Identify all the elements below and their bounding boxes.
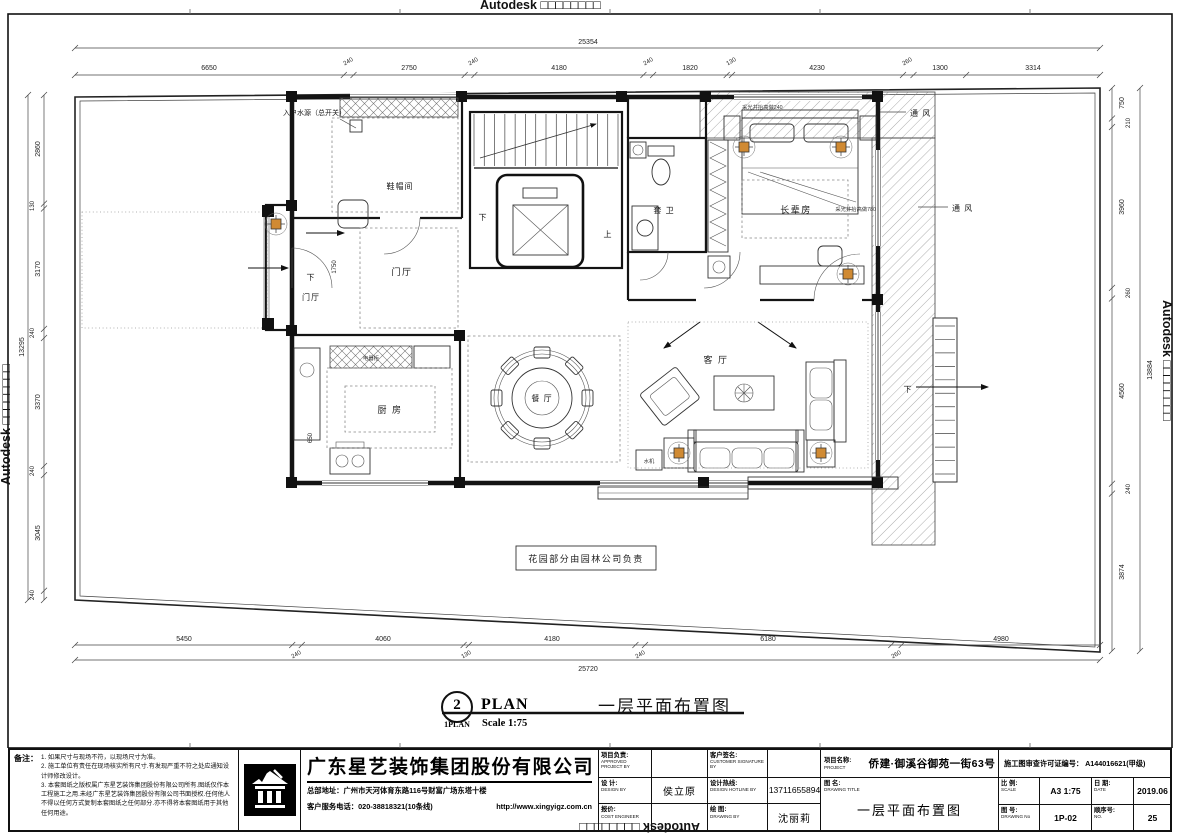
date-en: DATE (1094, 787, 1131, 792)
note-line: 1. 如果尺寸与现场不符，以现场尺寸为准。 (41, 753, 234, 762)
design-hotline-value: 13711655894 (767, 777, 821, 804)
dim: 240 (30, 589, 36, 600)
downlight (265, 213, 287, 235)
ceiling-outlines (327, 118, 868, 468)
design-by-value: 侯立原 (651, 777, 707, 804)
watermark-bottom: Autodesk □□□□□□□□ (579, 820, 700, 834)
interior-walls (292, 97, 878, 483)
label-kitchen: 厨 房 (377, 404, 402, 415)
label-foyer-porch: 门厅 (302, 292, 320, 302)
label-down-stairs: 下 (479, 213, 488, 222)
living-furniture (636, 360, 898, 489)
downlight (668, 442, 690, 464)
drawing-no-label: 图 号: DRAWING No (999, 804, 1039, 830)
dim: 240 (635, 650, 647, 661)
dim: 240 (468, 57, 480, 68)
dim: 130 (726, 57, 738, 68)
dim-left-overall: 13295 (19, 337, 26, 357)
downlight (830, 136, 852, 158)
scale-value: A3 1:75 (1039, 778, 1091, 804)
dim: 3045 (35, 525, 42, 541)
stairs (474, 114, 618, 168)
dim: 3960 (1119, 199, 1126, 215)
dim-chain-bottom (72, 642, 1103, 648)
project-cn: 项目名称: (824, 757, 866, 764)
dim: 240 (30, 465, 36, 476)
hotline-cn: 设计热线: (710, 780, 765, 787)
company-address: 总部地址：广州市天河体育东路116号财富广场东塔十楼 (307, 786, 592, 796)
dim-chain-bottom-overall (72, 657, 1103, 663)
signature-fields-section: 项目负责: APPROVED PROJECT BY 客户签名: CUSTOMER… (598, 750, 820, 830)
dim: 4180 (551, 65, 567, 72)
date-value: 2019.06 (1133, 778, 1171, 804)
label-vent-top: 通 风 (910, 108, 931, 118)
scale-date-section: 施工图审查许可证编号： A144016621(甲级) 比 例: SCALE A3… (998, 750, 1170, 830)
dim-chain-right (1109, 85, 1115, 654)
drawing-no-en: DRAWING No (1001, 814, 1037, 819)
drawing-by-value: 沈丽莉 (767, 803, 821, 830)
cost-en: COST ENGINEER (601, 814, 649, 819)
drawing-title-en: DRAWING TITLE (824, 787, 860, 792)
date-label: 日 期: DATE (1091, 778, 1133, 804)
logo-section (238, 750, 300, 830)
plan-title-number: 2 (453, 697, 461, 713)
notes-section: 备注： 1. 如果尺寸与现场不符，以现场尺寸为准。 2. 施工单位有责任在现场核… (10, 750, 238, 830)
design-hotline-label: 设计热线: DESIGN HOTLINE BY (707, 777, 767, 804)
label-water-machine: 水机 (644, 457, 655, 465)
dim-top-overall: 25354 (578, 39, 598, 46)
dim-bottom-overall: 25720 (578, 666, 598, 673)
label-lightwell-top: 采光井抬高做240 (742, 103, 783, 111)
dim: 260 (902, 57, 914, 68)
permit-label: 施工图审查许可证编号： (1004, 759, 1083, 769)
dim: 240 (643, 57, 655, 68)
dim: 2860 (35, 141, 42, 157)
label-down-right: 下 (904, 385, 913, 394)
dim: 210 (1126, 117, 1132, 128)
xingyi-logo-emblem (248, 768, 292, 812)
hotline-en: DESIGN HOTLINE BY (710, 787, 765, 792)
note-line: 2. 施工单位有责任在现场核实所有尺寸.有发现严重不符之处应通知设计师修改设计。 (41, 762, 234, 781)
label-bath: 套 卫 (653, 205, 674, 215)
dim: 6650 (201, 65, 217, 72)
plan-title: 2 1PLAN PLAN Scale 1:75 一层平面布置图 (442, 692, 744, 729)
dim: 4060 (375, 636, 391, 643)
drawn-cn: 绘 图: (710, 806, 765, 813)
design-en: DESIGN BY (601, 787, 649, 792)
outdoor-stair (933, 318, 957, 482)
label-up-stairs: 上 (604, 230, 613, 239)
dim: 3874 (1119, 564, 1126, 580)
company-name: 广东星艺装饰集团股份有限公司 (307, 752, 592, 783)
drawing-by-label: 绘 图: DRAWING BY (707, 803, 767, 830)
scale-label: 比 例: SCALE (999, 778, 1039, 804)
label-vent-right: 通 风 (952, 203, 973, 213)
approved-by-value (651, 750, 707, 777)
label-lightwell-right: 采光井抬高做780 (835, 205, 876, 213)
entry-walkway (82, 212, 267, 328)
label-appliance-cabinet: 电器柜 (363, 354, 380, 362)
company-url: http://www.xingyigz.com.cn (496, 802, 592, 811)
dim-kitchen: 650 (308, 432, 314, 443)
downlight (733, 136, 755, 158)
approved-en: APPROVED PROJECT BY (601, 759, 649, 769)
drawing-no-cn: 图 号: (1001, 807, 1037, 814)
dim: 1820 (682, 65, 698, 72)
company-section: 广东星艺装饰集团股份有限公司 总部地址：广州市天河体育东路116号财富广场东塔十… (300, 750, 598, 830)
company-phone: 客户服务电话：020-38818321(10条线) (307, 802, 433, 812)
elevator (497, 175, 583, 267)
project-label: 项目名称: PROJECT (821, 755, 866, 771)
dim: 260 (891, 650, 903, 661)
note-line: 3. 本套图纸之版权属广东星艺装饰集团股份有限公司所有.图纸仅作本工程施工之用.… (41, 781, 234, 818)
dim: 240 (30, 327, 36, 338)
plan-title-ref: 1PLAN (444, 720, 470, 729)
label-shoe-room: 鞋帽间 (387, 181, 414, 191)
dim: 3370 (35, 394, 42, 410)
dim: 750 (1119, 97, 1126, 109)
dim: 240 (1126, 483, 1132, 494)
customer-cn: 客户签名: (710, 752, 765, 759)
dim: 240 (291, 650, 303, 661)
label-down-porch: 下 (307, 273, 316, 282)
drawing-sheet: Autodesk □□□□□□□□ Autodesk □□□□□□□□ Auto… (0, 0, 1180, 834)
watermark-left: Autodesk □□□□□□□□ (0, 265, 13, 485)
drawing-title-cn: 图 名: (824, 780, 860, 787)
dim: 4230 (809, 65, 825, 72)
customer-signature-value (767, 750, 821, 777)
fridge (414, 346, 450, 368)
sequence-no-value: 25 (1133, 804, 1171, 830)
sequence-no-label: 顺序号: NO. (1091, 804, 1133, 830)
dim: 3314 (1025, 65, 1041, 72)
garden-note-text: 花园部分由园林公司负责 (528, 553, 644, 564)
wardrobe (708, 140, 730, 278)
columns (262, 91, 883, 488)
dim-chain-right-overall (1137, 85, 1143, 654)
windows (264, 93, 882, 488)
permit-value: A144016621(甲级) (1085, 759, 1145, 769)
drawing-title-value: 一层平面布置图 (821, 800, 998, 819)
approved-by-label: 项目负责: APPROVED PROJECT BY (599, 750, 651, 777)
project-en: PROJECT (824, 765, 866, 770)
plan-title-cn: 一层平面布置图 (598, 697, 731, 716)
drawing-no-value: 1P-02 (1039, 804, 1091, 830)
shoe-room-chair (338, 200, 368, 228)
label-living: 客 厅 (703, 354, 728, 365)
dim: 130 (461, 650, 473, 661)
dim: 4180 (544, 636, 560, 643)
dim-chain-top (72, 72, 1103, 78)
drawing-title-label: 图 名: DRAWING TITLE (824, 780, 860, 792)
plan-title-scale: Scale 1:75 (482, 718, 527, 729)
garden-note: 花园部分由园林公司负责 (516, 546, 656, 570)
project-section: 项目名称: PROJECT 侨建·御溪谷御苑一街63号 图 名: DRAWING… (820, 750, 998, 830)
watermark-right: Autodesk □□□□□□□□ (1160, 300, 1174, 520)
dim-right-overall: 13884 (1147, 360, 1154, 380)
closet-band (340, 98, 458, 117)
plan-title-name: PLAN (481, 696, 529, 713)
seq-en: NO. (1094, 814, 1131, 819)
drawn-en: DRAWING BY (710, 814, 765, 819)
dim: 5450 (176, 636, 192, 643)
date-cn: 日 期: (1094, 780, 1131, 787)
seq-cn: 顺序号: (1094, 807, 1131, 814)
terrace-steps (598, 487, 748, 499)
dim: 240 (343, 57, 355, 68)
label-water-source: 入户水源（总开关） (283, 108, 346, 117)
project-name: 侨建·御溪谷御苑一街63号 (866, 756, 998, 771)
dim: 3170 (35, 261, 42, 277)
dim: 4980 (993, 636, 1009, 643)
dim: 1300 (932, 65, 948, 72)
scale-en: SCALE (1001, 787, 1037, 792)
downlight (837, 263, 859, 285)
dim: 130 (30, 200, 36, 211)
dim: 4560 (1119, 383, 1126, 399)
dim: 260 (1126, 287, 1132, 298)
label-foyer: 门厅 (391, 266, 412, 277)
design-cn: 设 计: (601, 780, 649, 787)
downlight (810, 442, 832, 464)
customer-signature-label: 客户签名: CUSTOMER SIGNATURE BY (707, 750, 767, 777)
customer-en: CUSTOMER SIGNATURE BY (710, 759, 765, 769)
notes-label: 备注： (14, 753, 38, 827)
watermark-top: Autodesk □□□□□□□□ (480, 0, 601, 12)
approved-cn: 项目负责: (601, 752, 649, 759)
scale-cn: 比 例: (1001, 780, 1037, 787)
label-elder-room: 长辈房 (780, 204, 812, 215)
cost-cn: 报价: (601, 806, 649, 813)
dim: 6180 (760, 636, 776, 643)
xingyi-logo (244, 764, 296, 816)
label-dining: 餐 厅 (531, 394, 552, 403)
floor-plan-canvas: 25354 6650 240 2750 240 4180 240 1820 13… (0, 0, 1180, 748)
dim: 2750 (401, 65, 417, 72)
dim-foyer: 1750 (332, 260, 338, 274)
design-by-label: 设 计: DESIGN BY (599, 777, 651, 804)
